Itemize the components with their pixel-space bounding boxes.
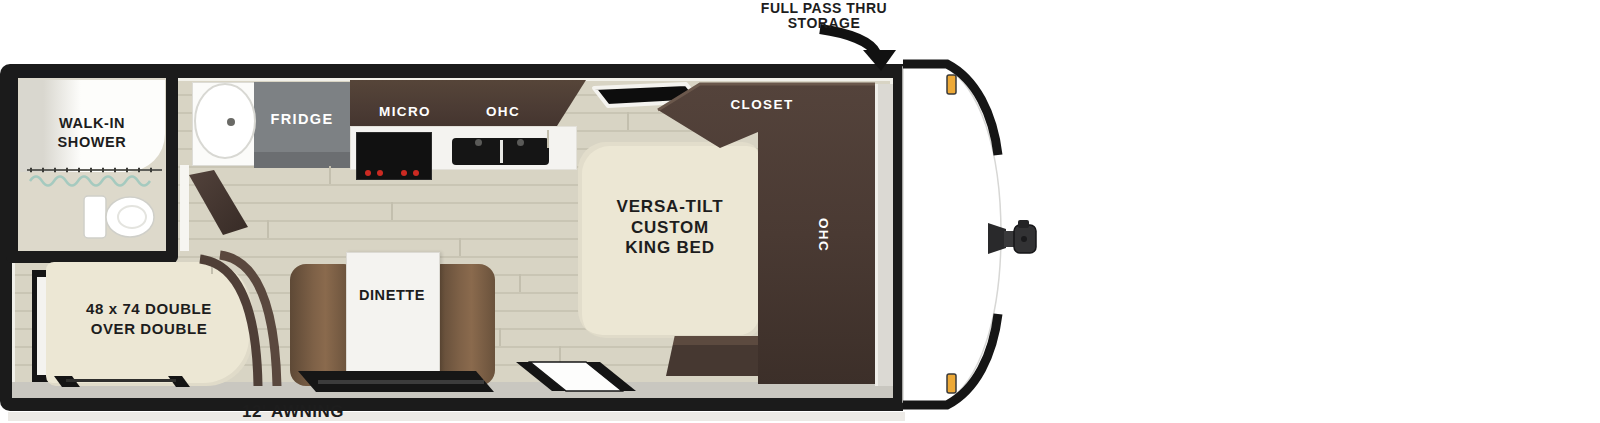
toilet-icon [84,196,154,238]
bathroom-door [189,170,248,235]
clearance-light-bottom [947,374,956,393]
bed-line2: CUSTOM [580,218,760,239]
closet-label: CLOSET [722,97,802,112]
pass-thru-arrow-icon [820,29,896,71]
dinette-label: DINETTE [346,287,438,303]
king-bed-label: VERSA-TILT CUSTOM KING BED [580,197,760,259]
awning-label: 12' AWNING [208,402,378,422]
clearance-light-top [947,75,956,94]
bed-line3: KING BED [580,238,760,259]
vector-overlay [0,0,1600,423]
bunk-label: 48 x 74 DOUBLE OVER DOUBLE [46,299,252,339]
kitchen-ohc-label: OHC [468,104,538,119]
bedroom-ohc-label: OHC [805,211,843,259]
shower-line2: SHOWER [22,133,162,152]
shower-glass-shimmer [30,177,150,186]
fridge-label: FRIDGE [256,111,348,127]
bunk-line2: OVER DOUBLE [46,319,252,339]
dinette-window [298,371,494,392]
bunk-line1: 48 x 74 DOUBLE [46,299,252,319]
bathroom-sink-icon [195,84,255,158]
bed-line1: VERSA-TILT [580,197,760,218]
floorplan-diagram: FULL PASS THRU STORAGE WALK-IN SHOWER FR… [0,0,1600,423]
pass-thru-line2: STORAGE [714,17,934,31]
front-cap [903,64,1001,405]
micro-label: MICRO [360,104,450,119]
walk-in-shower-label: WALK-IN SHOWER [22,114,162,152]
pass-thru-line1: FULL PASS THRU [714,2,934,16]
shower-line1: WALK-IN [22,114,162,133]
pass-thru-storage-label: FULL PASS THRU STORAGE [714,0,934,30]
entry-door [516,362,636,391]
bunk-threshold [54,376,190,387]
